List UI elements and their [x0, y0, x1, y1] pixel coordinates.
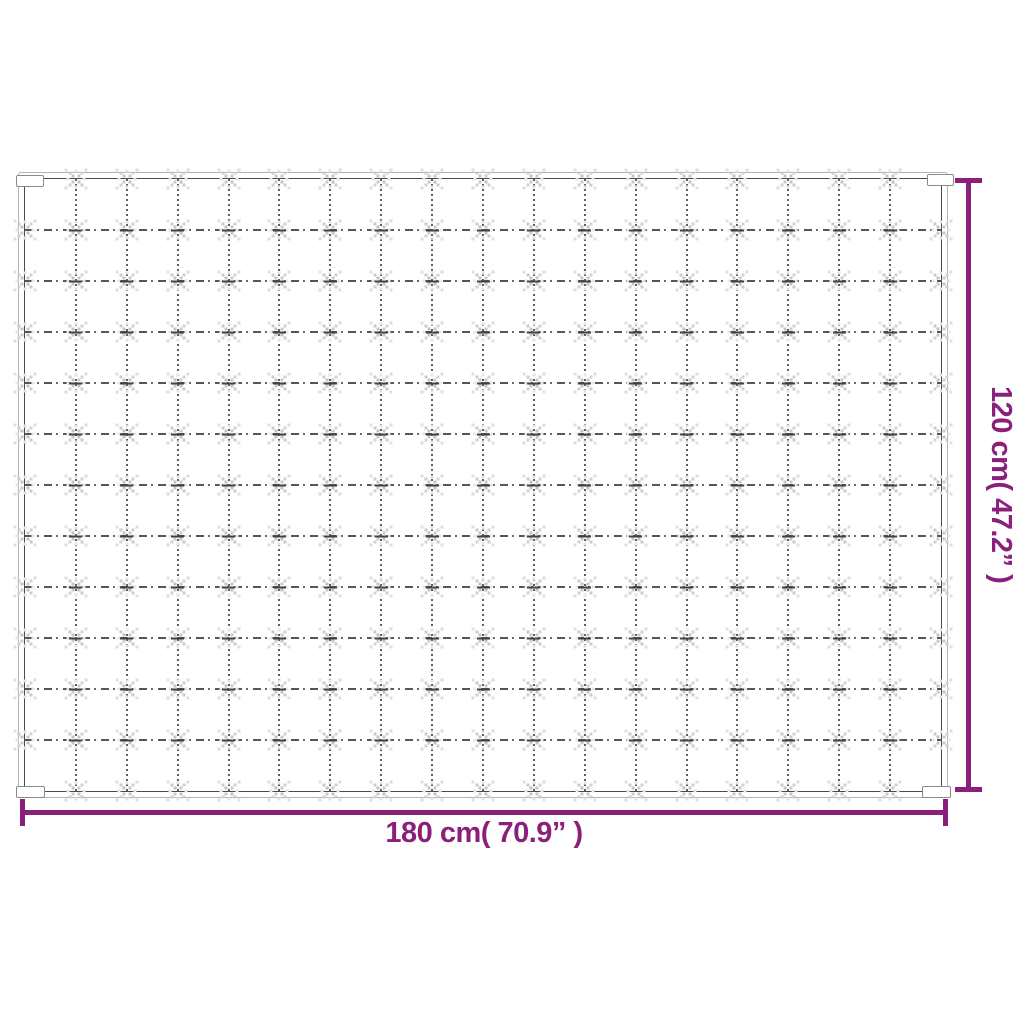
quilt-tuft	[634, 433, 637, 436]
quilt-tuft	[380, 739, 383, 742]
quilt-tuft	[482, 229, 485, 232]
quilt-tuft	[24, 535, 27, 538]
quilt-tuft	[787, 331, 790, 334]
quilt-tuft	[380, 331, 383, 334]
quilt-tuft	[889, 280, 892, 283]
quilt-tuft	[634, 739, 637, 742]
quilt-tuft	[227, 229, 230, 232]
quilt-tuft	[736, 637, 739, 640]
quilt-tuft	[380, 229, 383, 232]
quilt-tuft	[74, 178, 77, 181]
quilt-tuft	[125, 637, 128, 640]
quilt-tuft	[736, 433, 739, 436]
quilt-tuft	[634, 229, 637, 232]
quilt-tuft	[74, 484, 77, 487]
quilt-tuft	[176, 382, 179, 385]
quilt-tuft	[838, 484, 841, 487]
quilt-tuft	[125, 229, 128, 232]
quilt-tuft	[482, 790, 485, 793]
quilt-tuft	[380, 586, 383, 589]
quilt-tuft	[24, 739, 27, 742]
quilt-tuft	[24, 229, 27, 232]
quilt-tuft	[532, 178, 535, 181]
quilt-tuft	[787, 229, 790, 232]
quilt-tuft	[125, 382, 128, 385]
quilt-tuft	[125, 790, 128, 793]
quilt-tuft	[889, 484, 892, 487]
quilt-tuft	[532, 484, 535, 487]
quilt-tuft	[787, 790, 790, 793]
quilt-tuft	[74, 331, 77, 334]
quilt-tuft	[278, 382, 281, 385]
quilt-tuft	[24, 484, 27, 487]
blanket-grid	[25, 179, 941, 791]
quilt-tuft	[532, 790, 535, 793]
quilt-tuft	[482, 433, 485, 436]
quilt-tuft	[431, 229, 434, 232]
corner-loop-top-left	[16, 175, 44, 187]
quilt-tuft	[74, 382, 77, 385]
quilt-tuft	[329, 331, 332, 334]
quilt-tuft	[583, 535, 586, 538]
quilt-tuft	[227, 637, 230, 640]
quilt-tuft	[940, 535, 943, 538]
quilt-tuft	[24, 433, 27, 436]
quilt-tuft	[940, 637, 943, 640]
quilt-tuft	[583, 790, 586, 793]
quilt-tuft	[889, 382, 892, 385]
quilt-tuft	[838, 637, 841, 640]
quilt-tuft	[74, 280, 77, 283]
quilt-tuft	[482, 637, 485, 640]
quilt-tuft	[532, 586, 535, 589]
quilt-tuft	[838, 688, 841, 691]
quilt-tuft	[329, 229, 332, 232]
quilt-tuft	[24, 637, 27, 640]
quilt-tuft	[685, 586, 688, 589]
quilt-tuft	[482, 739, 485, 742]
corner-loop-bottom-right	[922, 786, 951, 798]
quilt-tuft	[24, 280, 27, 283]
quilt-tuft	[278, 484, 281, 487]
quilt-tuft	[431, 484, 434, 487]
height-dimension-end-cap-top	[955, 178, 982, 183]
quilt-tuft	[889, 178, 892, 181]
quilt-tuft	[889, 433, 892, 436]
quilt-tuft	[889, 331, 892, 334]
quilt-tuft	[176, 739, 179, 742]
quilt-tuft	[940, 739, 943, 742]
quilt-tuft	[431, 535, 434, 538]
quilt-tuft	[176, 637, 179, 640]
quilt-tuft	[532, 535, 535, 538]
quilt-tuft	[838, 586, 841, 589]
quilt-tuft	[74, 433, 77, 436]
quilt-tuft	[176, 535, 179, 538]
quilt-tuft	[685, 331, 688, 334]
quilt-tuft	[583, 586, 586, 589]
quilt-tuft	[431, 382, 434, 385]
quilt-tuft	[787, 382, 790, 385]
quilt-tuft	[583, 280, 586, 283]
quilt-tuft	[736, 688, 739, 691]
quilt-tuft	[532, 280, 535, 283]
quilt-tuft	[532, 433, 535, 436]
quilt-tuft	[685, 688, 688, 691]
quilt-tuft	[940, 331, 943, 334]
width-dimension-line	[20, 810, 948, 815]
quilt-tuft	[227, 586, 230, 589]
quilt-tuft	[634, 382, 637, 385]
quilt-tuft	[532, 739, 535, 742]
quilt-tuft	[889, 790, 892, 793]
quilt-tuft	[787, 637, 790, 640]
quilt-tuft	[329, 382, 332, 385]
quilt-tuft	[889, 535, 892, 538]
quilt-tuft	[125, 586, 128, 589]
quilt-tuft	[940, 382, 943, 385]
quilt-tuft	[176, 586, 179, 589]
quilt-tuft	[634, 688, 637, 691]
quilt-tuft	[125, 433, 128, 436]
quilt-tuft	[74, 229, 77, 232]
quilt-tuft	[329, 688, 332, 691]
quilt-tuft	[634, 178, 637, 181]
quilt-tuft	[736, 535, 739, 538]
quilt-tuft	[889, 586, 892, 589]
quilt-tuft	[176, 280, 179, 283]
quilt-tuft	[685, 484, 688, 487]
quilt-tuft	[74, 688, 77, 691]
quilt-tuft	[482, 484, 485, 487]
quilt-tuft	[125, 280, 128, 283]
quilt-tuft	[431, 178, 434, 181]
quilt-tuft	[329, 535, 332, 538]
width-dimension-label: 180 cm( 70.9” )	[20, 817, 948, 850]
quilt-tuft	[736, 331, 739, 334]
quilt-tuft	[583, 433, 586, 436]
quilt-tuft	[634, 586, 637, 589]
quilt-tuft	[125, 484, 128, 487]
quilt-tuft	[278, 280, 281, 283]
quilt-tuft	[24, 688, 27, 691]
quilt-tuft	[329, 433, 332, 436]
quilt-tuft	[634, 280, 637, 283]
quilt-tuft	[787, 739, 790, 742]
quilt-tuft	[532, 688, 535, 691]
quilt-tuft	[227, 382, 230, 385]
quilt-tuft	[380, 535, 383, 538]
quilt-tuft	[736, 739, 739, 742]
product-dimension-diagram: 120 cm( 47.2” ) 180 cm( 70.9” )	[0, 0, 1024, 1024]
quilt-tuft	[787, 586, 790, 589]
quilt-tuft	[583, 229, 586, 232]
quilt-tuft	[176, 331, 179, 334]
quilt-tuft	[278, 637, 281, 640]
quilt-tuft	[431, 790, 434, 793]
quilt-tuft	[278, 229, 281, 232]
quilt-tuft	[74, 790, 77, 793]
quilt-tuft	[940, 484, 943, 487]
quilt-tuft	[74, 586, 77, 589]
quilt-tuft	[889, 688, 892, 691]
quilt-tuft	[227, 535, 230, 538]
quilt-tuft	[685, 637, 688, 640]
quilt-tuft	[227, 484, 230, 487]
quilt-tuft	[24, 586, 27, 589]
quilt-tuft	[24, 382, 27, 385]
quilt-tuft	[889, 229, 892, 232]
quilt-tuft	[889, 637, 892, 640]
quilt-tuft	[583, 382, 586, 385]
quilt-tuft	[940, 229, 943, 232]
quilt-tuft	[685, 433, 688, 436]
quilt-tuft	[380, 382, 383, 385]
quilt-tuft	[583, 178, 586, 181]
quilt-tuft	[227, 790, 230, 793]
quilt-tuft	[176, 433, 179, 436]
quilt-tuft	[278, 178, 281, 181]
quilt-tuft	[583, 637, 586, 640]
quilt-tuft	[329, 178, 332, 181]
height-dimension-end-cap-bottom	[955, 787, 982, 792]
quilt-tuft	[838, 178, 841, 181]
quilt-tuft	[532, 229, 535, 232]
corner-loop-top-right	[927, 174, 954, 186]
quilt-tuft	[838, 331, 841, 334]
quilt-tuft	[380, 280, 383, 283]
blanket	[18, 172, 948, 798]
quilt-tuft	[940, 688, 943, 691]
quilt-tuft	[482, 382, 485, 385]
quilt-tuft	[787, 688, 790, 691]
quilt-tuft	[125, 178, 128, 181]
quilt-tuft	[329, 739, 332, 742]
quilt-tuft	[125, 739, 128, 742]
quilt-tuft	[787, 178, 790, 181]
quilt-tuft	[380, 178, 383, 181]
quilt-tuft	[736, 280, 739, 283]
quilt-tuft	[125, 535, 128, 538]
quilt-tuft	[176, 178, 179, 181]
quilt-tuft	[74, 535, 77, 538]
quilt-tuft	[838, 229, 841, 232]
quilt-tuft	[380, 433, 383, 436]
quilt-tuft	[176, 484, 179, 487]
quilt-tuft	[736, 586, 739, 589]
quilt-tuft	[278, 586, 281, 589]
quilt-tuft	[685, 739, 688, 742]
quilt-tuft	[329, 586, 332, 589]
quilt-tuft	[940, 280, 943, 283]
quilt-tuft	[24, 331, 27, 334]
quilt-tuft	[889, 739, 892, 742]
quilt-tuft	[431, 280, 434, 283]
quilt-tuft	[431, 331, 434, 334]
quilt-tuft	[787, 484, 790, 487]
quilt-tuft	[787, 280, 790, 283]
quilt-tuft	[634, 484, 637, 487]
quilt-tuft	[583, 484, 586, 487]
quilt-tuft	[634, 637, 637, 640]
quilt-tuft	[329, 280, 332, 283]
quilt-tuft	[685, 790, 688, 793]
quilt-tuft	[838, 535, 841, 538]
quilt-tuft	[380, 790, 383, 793]
quilt-tuft	[583, 331, 586, 334]
quilt-tuft	[787, 535, 790, 538]
quilt-tuft	[482, 535, 485, 538]
quilt-tuft	[685, 229, 688, 232]
quilt-tuft	[431, 739, 434, 742]
quilt-tuft	[940, 433, 943, 436]
quilt-tuft	[838, 382, 841, 385]
quilt-tuft	[329, 637, 332, 640]
quilt-tuft	[176, 688, 179, 691]
quilt-tuft	[227, 178, 230, 181]
quilt-tuft	[329, 790, 332, 793]
corner-loop-bottom-left	[16, 786, 45, 798]
quilt-tuft	[176, 229, 179, 232]
quilt-tuft	[634, 790, 637, 793]
quilt-tuft	[227, 688, 230, 691]
quilt-tuft	[278, 433, 281, 436]
quilt-tuft	[482, 688, 485, 691]
quilt-tuft	[125, 331, 128, 334]
quilt-tuft	[227, 280, 230, 283]
quilt-tuft	[431, 688, 434, 691]
quilt-tuft	[685, 382, 688, 385]
quilt-tuft	[380, 637, 383, 640]
quilt-tuft	[278, 739, 281, 742]
quilt-tuft	[838, 790, 841, 793]
quilt-tuft	[278, 331, 281, 334]
quilt-tuft	[685, 280, 688, 283]
quilt-tuft	[74, 739, 77, 742]
quilt-tuft	[482, 280, 485, 283]
quilt-tuft	[482, 331, 485, 334]
quilt-tuft	[736, 229, 739, 232]
quilt-tuft	[736, 178, 739, 181]
height-dimension-label: 120 cm( 47.2” )	[981, 178, 1017, 791]
quilt-tuft	[532, 331, 535, 334]
quilt-tuft	[278, 790, 281, 793]
quilt-tuft	[583, 688, 586, 691]
quilt-tuft	[634, 331, 637, 334]
quilt-tuft	[685, 178, 688, 181]
quilt-tuft	[940, 586, 943, 589]
quilt-tuft	[431, 637, 434, 640]
quilt-tuft	[787, 433, 790, 436]
quilt-tuft	[838, 739, 841, 742]
quilt-tuft	[634, 535, 637, 538]
quilt-tuft	[532, 382, 535, 385]
quilt-tuft	[482, 586, 485, 589]
quilt-tuft	[736, 382, 739, 385]
quilt-tuft	[838, 433, 841, 436]
quilt-tuft	[227, 433, 230, 436]
quilt-tuft	[278, 535, 281, 538]
quilt-tuft	[532, 637, 535, 640]
quilt-tuft	[380, 484, 383, 487]
quilt-tuft	[227, 739, 230, 742]
quilt-tuft	[278, 688, 281, 691]
quilt-tuft	[685, 535, 688, 538]
quilt-tuft	[125, 688, 128, 691]
quilt-tuft	[736, 484, 739, 487]
quilt-tuft	[431, 586, 434, 589]
quilt-tuft	[176, 790, 179, 793]
quilt-tuft	[482, 178, 485, 181]
quilt-tuft	[583, 739, 586, 742]
quilt-tuft	[227, 331, 230, 334]
quilt-tuft	[431, 433, 434, 436]
quilt-tuft	[74, 637, 77, 640]
quilt-tuft	[329, 484, 332, 487]
quilt-tuft	[380, 688, 383, 691]
quilt-tuft	[838, 280, 841, 283]
quilt-tuft	[736, 790, 739, 793]
height-dimension-line	[966, 178, 971, 792]
